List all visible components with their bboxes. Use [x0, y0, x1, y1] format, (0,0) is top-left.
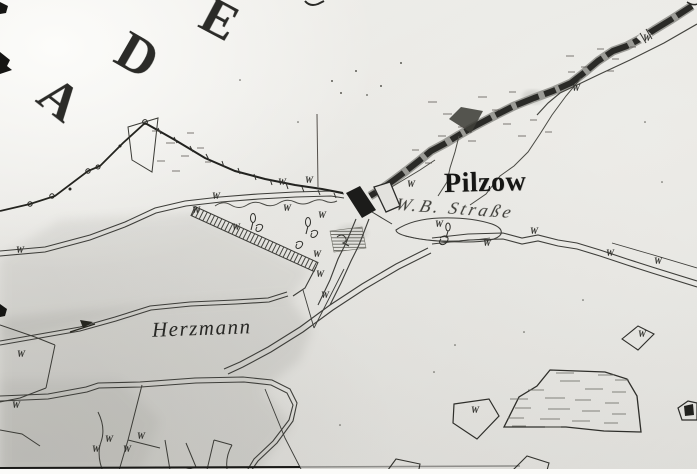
meadow-symbol: W	[407, 179, 416, 189]
meadow-symbol: W	[137, 431, 146, 441]
map-photo: WWWWWWWWWWWWWWWWWWWWWWWWWWW A D E Pilzow…	[0, 0, 697, 474]
meadow-symbol: W	[606, 248, 615, 258]
meadow-symbol: W	[278, 177, 287, 187]
meadow-symbol: W	[123, 444, 132, 454]
meadow-symbol: W	[232, 222, 241, 232]
stream-side-road	[537, 24, 697, 115]
bold-boundary	[145, 123, 343, 193]
meadow-symbol: W	[572, 83, 581, 93]
meadow-symbol: W	[471, 405, 480, 415]
meadow-symbol: W	[92, 444, 101, 454]
illegible-parcel-text	[508, 373, 629, 427]
meadow-symbol: W	[16, 245, 25, 255]
large-parcel	[504, 370, 641, 432]
boundary-markers	[28, 120, 148, 207]
meadow-symbol: W	[638, 329, 647, 339]
meadow-symbol: W	[313, 249, 322, 259]
marker-line	[0, 123, 145, 211]
meadow-symbol: W	[17, 349, 26, 359]
meadow-symbol: W	[283, 203, 292, 213]
area-label: Herzmann	[152, 314, 252, 342]
connector	[372, 212, 392, 224]
triangle-parcel	[128, 118, 158, 172]
meadow-symbol: W	[483, 238, 492, 248]
survey-line	[317, 114, 318, 187]
wetland-dashes	[152, 47, 636, 171]
se-parcels	[385, 326, 697, 474]
meadow-symbol: W	[654, 256, 663, 266]
meadow-symbol: W	[530, 226, 539, 236]
building-block	[684, 404, 694, 416]
meadow-symbol: W	[316, 269, 325, 279]
meadow-symbol: W	[305, 175, 314, 185]
meadow-symbol: W	[12, 400, 21, 410]
meadow-symbol: W	[435, 219, 444, 229]
meadow-symbol: W	[321, 290, 330, 300]
place-label: Pilzow	[444, 166, 527, 200]
meadow-symbol: W	[318, 210, 327, 220]
bridge-buildings	[346, 182, 400, 224]
field-shading	[0, 90, 544, 474]
marker-dot	[119, 145, 122, 148]
meadow-symbol: W	[212, 191, 221, 201]
meadow-symbol: W	[192, 205, 201, 215]
cut-letter-fragment	[305, 1, 324, 5]
meadow-symbol: W	[105, 434, 114, 444]
marker-dot	[69, 188, 72, 191]
meadow-symbol: W	[643, 33, 652, 43]
